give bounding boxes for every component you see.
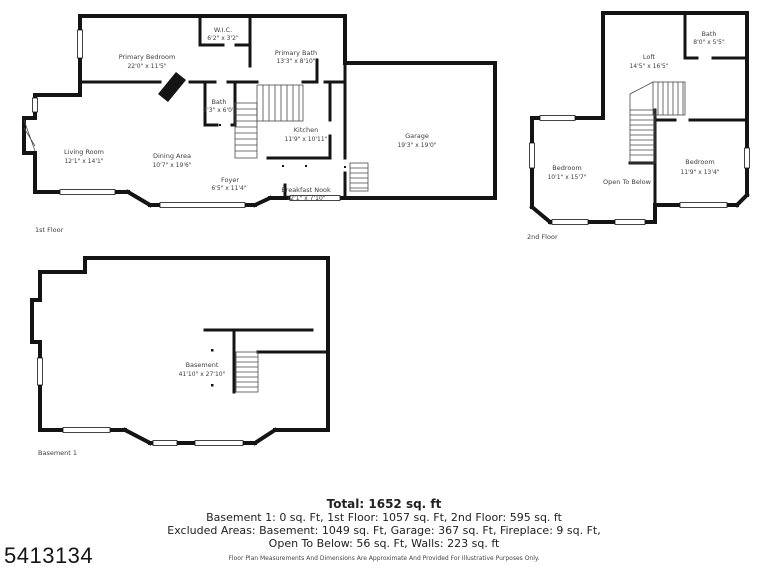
room-dims-bath-2: 8'0" x 5'5" [693,39,725,46]
disclaimer-text: Floor Plan Measurements And Dimensions A… [0,555,768,562]
first-floor-staircase [235,85,303,158]
second-floor-staircase [630,82,685,163]
second-floor-door-pivot-dots [674,57,698,121]
window [153,441,177,446]
second-floor-title: 2nd Floor [527,233,558,241]
second-floor-plan: Loft 14'5" x 16'5" Bath 8'0" x 5'5" Bedr… [525,8,768,251]
window [38,358,43,385]
window [745,148,750,168]
total-area-text: Total: 1652 sq. ft [0,497,768,511]
room-label-primary-bedroom: Primary Bedroom [119,53,176,61]
area-summary: Total: 1652 sq. ft Basement 1: 0 sq. Ft,… [0,497,768,562]
fireplace [158,72,186,102]
room-dims-garage: 19'3" x 19'0" [397,142,436,149]
basement-staircase [236,352,258,392]
room-label-living-room: Living Room [64,148,104,156]
room-dims-breakfast-nook: 12'1" x 7'10" [286,195,325,202]
first-floor-exterior-walls [24,16,495,205]
room-dims-bedroom-right: 11'9" x 13'4" [680,169,719,176]
floor-areas-text: Basement 1: 0 sq. Ft, 1st Floor: 1057 sq… [0,511,768,524]
excluded-areas-text: Excluded Areas: Basement: 1049 sq. Ft, G… [0,524,768,537]
first-floor-plan: Primary Bedroom 22'0" x 11'5" W.I.C. 6'2… [20,8,510,236]
window [552,220,588,225]
room-label-wic: W.I.C. [214,26,232,34]
excluded-areas-text-2: Open To Below: 56 sq. Ft, Walls: 223 sq.… [0,537,768,550]
room-label-loft: Loft [643,53,656,61]
window [680,203,727,208]
first-floor-title: 1st Floor [35,226,64,234]
room-dims-bath: 3'3" x 6'0" [203,107,235,114]
room-dims-wic: 6'2" x 3'2" [207,35,239,42]
room-dims-primary-bath: 13'3" x 8'10" [276,58,315,65]
room-dims-basement: 41'10" x 27'10" [179,371,226,378]
window [63,428,110,433]
window [160,203,245,208]
window [615,220,645,225]
room-dims-dining-area: 10'7" x 19'6" [152,162,191,169]
basement-room-labels: Basement 41'10" x 27'10" [179,361,226,378]
room-label-dining-area: Dining Area [153,152,191,160]
room-label-bath-2: Bath [701,30,716,38]
window [530,143,535,168]
basement-title: Basement 1 [38,449,77,457]
room-dims-living-room: 12'1" x 14'1" [64,158,103,165]
window [195,441,243,446]
room-label-kitchen: Kitchen [294,126,318,134]
window [33,98,38,112]
room-dims-bedroom-left: 10'1" x 15'7" [547,174,586,181]
room-label-open-to-below: Open To Below [603,178,652,186]
room-label-primary-bath: Primary Bath [275,49,317,57]
window [78,30,83,58]
room-label-basement: Basement [186,361,219,369]
second-floor-interior-walls [630,13,747,205]
listing-id-watermark: 5413134 [4,543,93,569]
room-label-foyer: Foyer [221,176,239,184]
basement-plan: Basement 41'10" x 27'10" Basement 1 [25,250,340,465]
garage-entry-steps [350,163,368,191]
room-dims-loft: 14'5" x 16'5" [629,63,668,70]
room-label-bedroom-right: Bedroom [685,158,714,166]
room-label-garage: Garage [405,132,429,140]
room-dims-foyer: 6'5" x 11'4" [211,185,247,192]
room-dims-kitchen: 11'9" x 10'11" [285,136,328,143]
window [540,116,575,121]
room-dims-primary-bedroom: 22'0" x 11'5" [127,63,166,70]
room-label-breakfast-nook: Breakfast Nook [281,186,331,194]
basement-interior-walls [205,330,328,392]
room-label-bedroom-left: Bedroom [552,164,581,172]
room-label-bath: Bath [211,98,226,106]
window [60,190,115,195]
